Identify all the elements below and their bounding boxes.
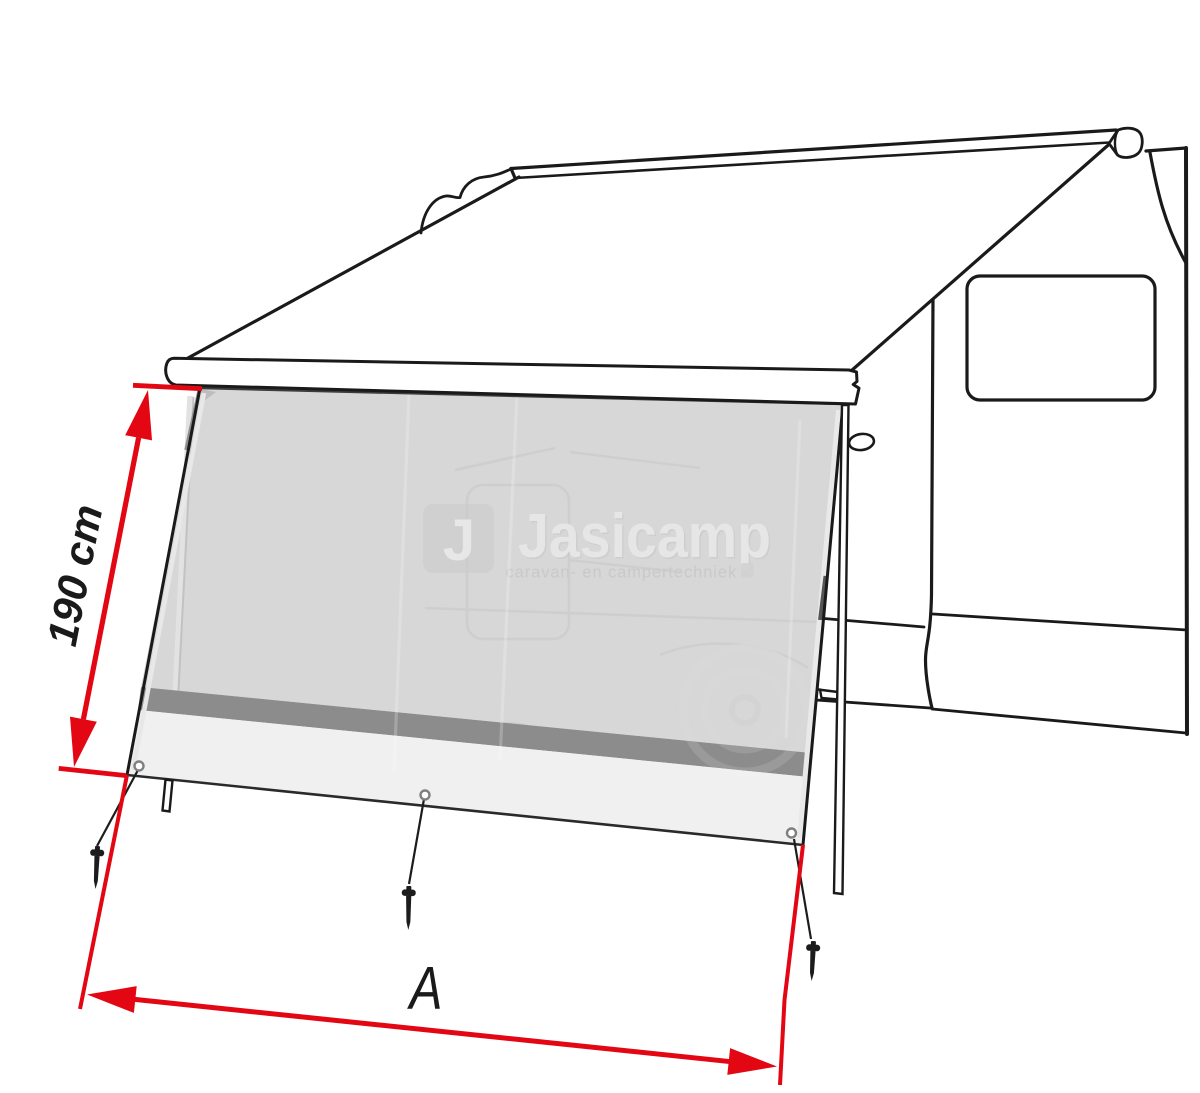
svg-text:J: J bbox=[443, 508, 475, 573]
svg-text:Jasicamp: Jasicamp bbox=[518, 502, 771, 571]
svg-text:A: A bbox=[407, 955, 442, 1022]
svg-text:caravan- en campertechniek: caravan- en campertechniek bbox=[506, 564, 738, 582]
